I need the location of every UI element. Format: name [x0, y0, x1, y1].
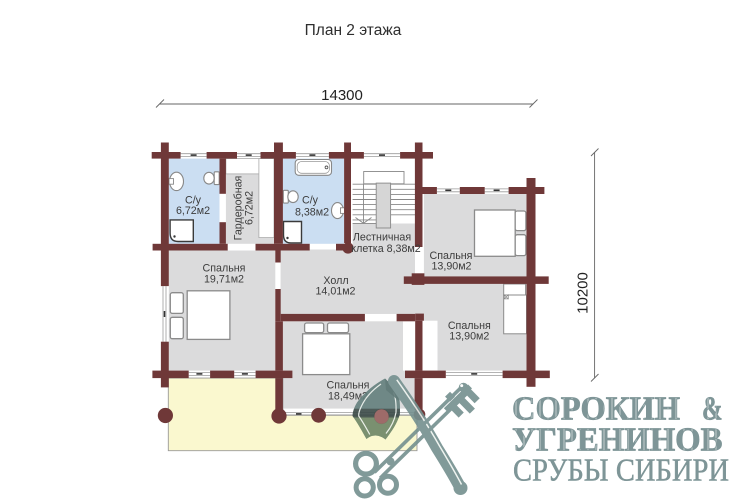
svg-text:13,90м2: 13,90м2 [449, 331, 489, 343]
svg-text:Лестничная: Лестничная [353, 232, 411, 244]
svg-text:клетка 8,38м2: клетка 8,38м2 [351, 243, 420, 255]
svg-text:19,71м2: 19,71м2 [204, 274, 244, 286]
svg-text:13,90м2: 13,90м2 [431, 261, 471, 273]
svg-text:14,01м2: 14,01м2 [315, 286, 355, 298]
svg-text:8,38м2: 8,38м2 [295, 207, 329, 219]
svg-text:План 2 этажа: План 2 этажа [305, 22, 402, 39]
svg-text:С/у: С/у [302, 195, 319, 207]
svg-text:СРУБЫ СИБИРИ: СРУБЫ СИБИРИ [513, 452, 729, 487]
svg-text:14300: 14300 [321, 87, 363, 104]
svg-text:10200: 10200 [575, 272, 592, 314]
svg-text:6,72м2: 6,72м2 [176, 205, 210, 217]
svg-text:6,72м2: 6,72м2 [244, 191, 256, 225]
